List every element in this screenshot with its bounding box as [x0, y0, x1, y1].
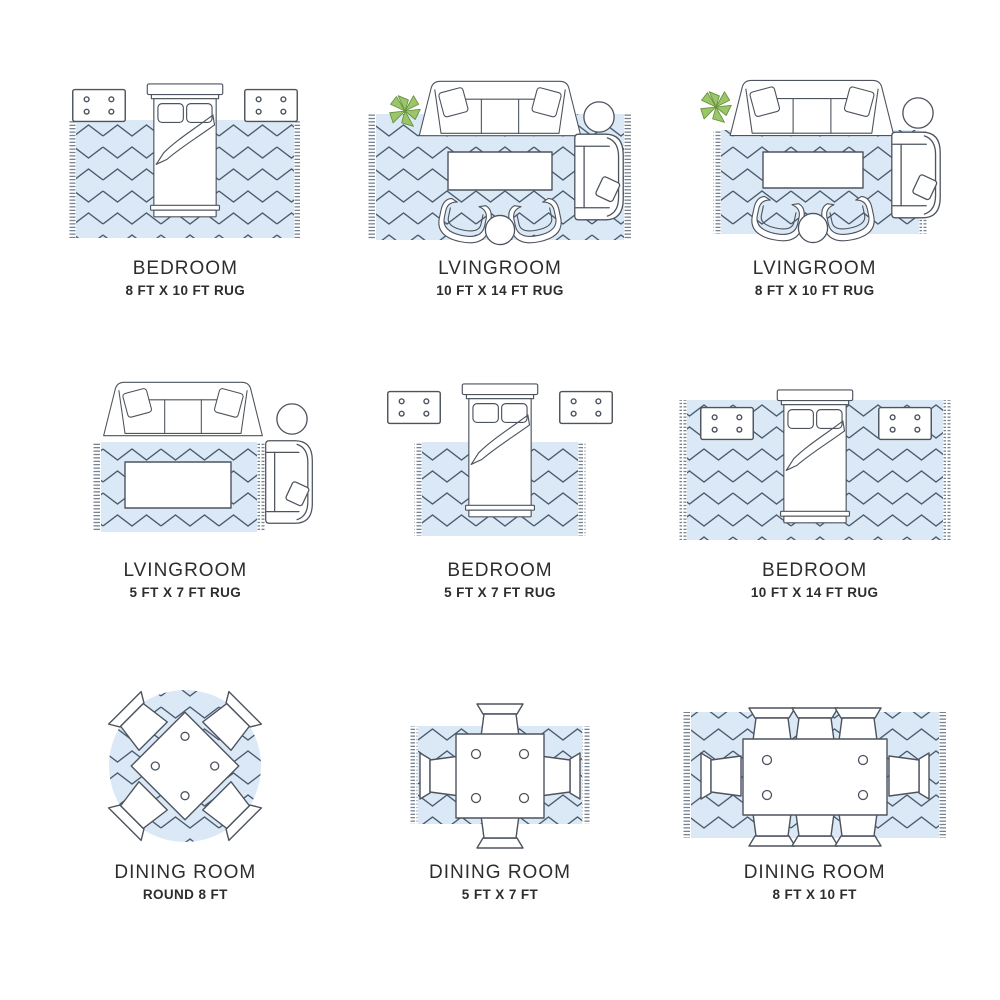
card-dining-round-8: DINING ROOM ROUND 8 FT [28, 640, 343, 942]
card-label: DINING ROOM 8 FT X 10 FT [744, 862, 886, 902]
rug-size: 5 FT X 7 FT RUG [123, 585, 247, 600]
card-bedroom-5x7: BEDROOM 5 FT X 7 FT RUG [343, 338, 658, 640]
sofa-icon [104, 382, 263, 435]
dining-chair-icon [540, 753, 580, 799]
coffee-table-icon [448, 152, 552, 190]
sofa-icon [419, 81, 580, 135]
card-label: BEDROOM 10 FT X 14 FT RUG [751, 560, 879, 600]
card-bedroom-8x10: BEDROOM 8 FT X 10 FT RUG [28, 36, 343, 338]
rug-size: 8 FT X 10 FT [744, 887, 886, 902]
rug-size: 8 FT X 10 FT RUG [125, 283, 245, 298]
livingroom-5x7-illustration [45, 378, 325, 550]
nightstand-icon [878, 408, 931, 440]
card-bedroom-10x14: BEDROOM 10 FT X 14 FT RUG [657, 338, 972, 640]
nightstand-icon [245, 90, 298, 122]
coffee-table-icon [763, 152, 863, 188]
dining-chair-icon [889, 753, 929, 799]
room-title: DINING ROOM [114, 862, 256, 884]
ottoman-icon [485, 215, 514, 244]
coffee-table-icon [125, 462, 231, 508]
nightstand-icon [388, 392, 441, 424]
rug-size: 10 FT X 14 FT RUG [436, 283, 564, 298]
bedroom-8x10-illustration [45, 76, 325, 248]
room-title: LVINGROOM [436, 258, 564, 280]
card-label: DINING ROOM 5 FT X 7 FT [429, 862, 571, 902]
card-dining-8x10: DINING ROOM 8 FT X 10 FT [657, 640, 972, 942]
room-title: DINING ROOM [744, 862, 886, 884]
armchair-icon [575, 134, 623, 220]
card-livingroom-8x10: LVINGROOM 8 FT X 10 FT RUG [657, 36, 972, 338]
nightstand-icon [73, 90, 126, 122]
dining-table-icon [743, 739, 887, 815]
card-label: LVINGROOM 8 FT X 10 FT RUG [753, 258, 877, 298]
ottoman-icon [798, 213, 827, 242]
dining-5x7-illustration [360, 680, 640, 852]
side-table-icon [277, 404, 307, 434]
dining-8x10-illustration [675, 680, 955, 852]
dining-chair-icon [701, 753, 741, 799]
room-title: BEDROOM [444, 560, 556, 582]
side-table-icon [903, 98, 933, 128]
bedroom-10x14-illustration [675, 378, 955, 550]
sofa-icon [730, 80, 894, 135]
card-label: DINING ROOM ROUND 8 FT [114, 862, 256, 902]
armchair-icon [891, 132, 939, 218]
rug-size: ROUND 8 FT [114, 887, 256, 902]
armchair-icon [266, 441, 313, 523]
card-livingroom-10x14: LVINGROOM 10 FT X 14 FT RUG [343, 36, 658, 338]
rug-size: 5 FT X 7 FT [429, 887, 571, 902]
card-livingroom-5x7: LVINGROOM 5 FT X 7 FT RUG [28, 338, 343, 640]
dining-chair-icon [420, 753, 460, 799]
rug-size: 8 FT X 10 FT RUG [753, 283, 877, 298]
card-label: BEDROOM 5 FT X 7 FT RUG [444, 560, 556, 600]
rug-size: 5 FT X 7 FT RUG [444, 585, 556, 600]
room-title: LVINGROOM [753, 258, 877, 280]
nightstand-icon [560, 392, 613, 424]
livingroom-8x10-illustration [675, 76, 955, 248]
bed-icon [777, 390, 852, 523]
side-table-icon [584, 102, 614, 132]
room-title: BEDROOM [125, 258, 245, 280]
rug-size-guide: BEDROOM 8 FT X 10 FT RUG LVINGROOM 10 FT… [0, 0, 1000, 942]
bedroom-5x7-illustration [360, 378, 640, 550]
nightstand-icon [700, 408, 753, 440]
rug-size: 10 FT X 14 FT RUG [751, 585, 879, 600]
card-dining-5x7: DINING ROOM 5 FT X 7 FT [343, 640, 658, 942]
card-label: LVINGROOM 5 FT X 7 FT RUG [123, 560, 247, 600]
bed-icon [462, 384, 537, 517]
livingroom-10x14-illustration [360, 76, 640, 248]
dining-table-icon [456, 734, 544, 818]
dining-round-8-illustration [45, 680, 325, 852]
card-label: BEDROOM 8 FT X 10 FT RUG [125, 258, 245, 298]
plant-icon [700, 92, 731, 123]
bed-icon [148, 84, 223, 217]
room-title: DINING ROOM [429, 862, 571, 884]
room-title: BEDROOM [751, 560, 879, 582]
card-label: LVINGROOM 10 FT X 14 FT RUG [436, 258, 564, 298]
room-title: LVINGROOM [123, 560, 247, 582]
